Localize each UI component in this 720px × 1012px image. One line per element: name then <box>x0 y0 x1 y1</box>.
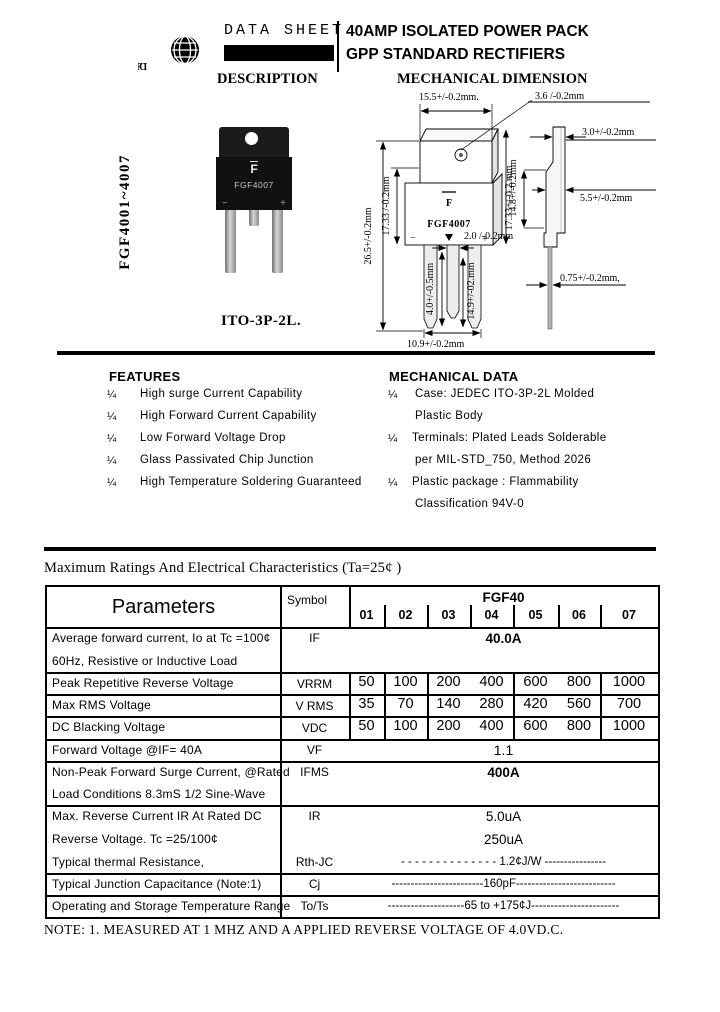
feature-bullet: ¼ <box>107 411 116 423</box>
param-vrms: Max RMS Voltage <box>52 698 151 712</box>
feature-item: High Temperature Soldering Guaranteed <box>140 476 362 488</box>
description-heading: DESCRIPTION <box>217 71 318 88</box>
vrrm-06: 800 <box>558 674 600 690</box>
footnote: NOTE: 1. MEASURED AT 1 MHZ AND A APPLIED… <box>44 922 563 938</box>
vrrm-04: 400 <box>470 674 513 690</box>
feature-bullet: ¼ <box>107 433 116 445</box>
mech-line: Plastic Body <box>415 410 483 422</box>
col-header-03: 03 <box>427 608 470 622</box>
front-part-number: FGF4007 <box>427 219 471 230</box>
symbol-vrms: V RMS <box>280 699 349 713</box>
param-ir-line1: Max. Reverse Current IR At Rated DC <box>52 809 262 823</box>
col-header-05: 05 <box>513 608 558 622</box>
svg-text:FCI: FCI <box>138 62 147 73</box>
param-ir-line3: Typical thermal Resistance, <box>52 855 204 869</box>
symbol-vdc: VDC <box>280 721 349 735</box>
dim-mid-lead-label: 4.0+/-0.5mm <box>425 263 436 316</box>
photo-brand-letter: F <box>250 161 257 176</box>
front-hole-center <box>459 153 463 157</box>
param-ir-line2: Reverse Voltage. Tc =25/100¢ <box>52 832 218 846</box>
feature-item: High surge Current Capability <box>140 388 302 400</box>
mech-line: Case: JEDEC ITO-3P-2L Molded <box>415 388 594 400</box>
photo-lead-left <box>225 210 236 273</box>
symbol-rth: Rth-JC <box>280 855 349 869</box>
param-cj: Typical Junction Capacitance (Note:1) <box>52 877 262 891</box>
side-profile <box>544 127 565 247</box>
section-divider-table <box>44 547 656 551</box>
vdc-03: 200 <box>427 718 470 734</box>
dim-top-thickness-label: 3.0+/-0.2mm <box>582 127 635 138</box>
header-black-bar <box>224 45 334 61</box>
vrms-02: 70 <box>384 696 427 712</box>
vdc-06: 800 <box>558 718 600 734</box>
param-ifms-line2: Load Conditions 8.3mS 1/2 Sine-Wave <box>52 787 265 801</box>
datasheet-page: FCI DATA SHEET 40AMP ISOLATED POWER PACK… <box>0 0 720 1012</box>
doc-title-line1: 40AMP ISOLATED POWER PACK <box>346 23 589 41</box>
front-minus-mark: − <box>410 233 416 244</box>
header-divider <box>337 21 339 72</box>
mech-bullet: ¼ <box>388 389 397 401</box>
value-vf: 1.1 <box>349 742 658 758</box>
param-if-line1: Average forward current, Io at Tc =100¢ <box>52 631 270 645</box>
photo-plus-mark: + <box>280 198 286 209</box>
ratings-table: Parameters Symbol FGF40 01 02 03 04 05 0… <box>45 585 660 919</box>
param-vrrm: Peak Repetitive Reverse Voltage <box>52 676 234 690</box>
feature-item: Glass Passivated Chip Junction <box>140 454 314 466</box>
vdc-02: 100 <box>384 718 427 734</box>
front-brand-letter: F <box>446 198 452 209</box>
mechanical-dimension-heading: MECHANICAL DIMENSION <box>397 71 588 88</box>
feature-bullet: ¼ <box>107 455 116 467</box>
feature-item: High Forward Current Capability <box>140 410 317 422</box>
data-sheet-label: DATA SHEET <box>224 22 344 39</box>
vrms-01: 35 <box>349 696 384 712</box>
mech-line: per MIL-STD_750, Method 2026 <box>415 454 591 466</box>
package-name-label: ITO-3P-2L. <box>221 313 301 330</box>
photo-lead-right <box>272 210 283 273</box>
vrrm-05: 600 <box>513 674 558 690</box>
vrrm-02: 100 <box>384 674 427 690</box>
param-vf: Forward Voltage @IF= 40A <box>52 743 202 757</box>
mech-line: Classification 94V-0 <box>415 498 524 510</box>
vdc-05: 600 <box>513 718 558 734</box>
mech-line: Terminals: Plated Leads Solderable <box>412 432 607 444</box>
vrms-06: 560 <box>558 696 600 712</box>
vdc-01: 50 <box>349 718 384 734</box>
vrrm-01: 50 <box>349 674 384 690</box>
col-header-04: 04 <box>470 608 513 622</box>
feature-bullet: ¼ <box>107 477 116 489</box>
dim-lead-width-label: 2.0 /-0.2mm <box>464 231 513 242</box>
part-range-text: FGF4001~4007 <box>117 154 134 270</box>
dim-top-width-label: 15.5+/-0.2mm. <box>419 92 479 103</box>
mech-line: Plastic package : Flammability <box>412 476 579 488</box>
front-tab-face <box>420 141 492 183</box>
feature-item: Low Forward Voltage Drop <box>140 432 286 444</box>
vrms-04: 280 <box>470 696 513 712</box>
param-vdc: DC Blacking Voltage <box>52 720 165 734</box>
symbol-ifms: IFMS <box>280 765 349 779</box>
value-ir-100: 250uA <box>349 832 658 847</box>
feature-bullet: ¼ <box>107 389 116 401</box>
dim-lead-span-label: 10.9+/-0.2mm <box>407 339 465 350</box>
dim-lead-length-label: 14.9+/-02.mm <box>466 262 477 320</box>
section-divider-top <box>57 351 655 355</box>
vrrm-07: 1000 <box>600 674 658 690</box>
front-tab-top-face <box>420 129 498 141</box>
param-tots: Operating and Storage Temperature Range <box>52 899 290 913</box>
part-range-vertical: FGF4001~4007 <box>96 148 154 276</box>
photo-lead-middle <box>249 210 259 226</box>
photo-body: F FGF4007 − + <box>216 157 292 210</box>
mechanical-data-heading: MECHANICAL DATA <box>389 369 518 384</box>
col-header-07: 07 <box>600 608 658 622</box>
vdc-04: 400 <box>470 718 513 734</box>
symbol-cj: Cj <box>280 877 349 891</box>
photo-mount-hole <box>245 132 258 145</box>
vdc-07: 1000 <box>600 718 658 734</box>
value-rth: - - - - - - - - - - - - - - 1.2¢J/W ----… <box>349 856 658 868</box>
photo-part-number: FGF4007 <box>216 180 292 190</box>
side-lead <box>548 247 552 329</box>
dim-total-height-label: 26.5+/-0.2mm <box>363 207 374 265</box>
param-if-line2: 60Hz, Resistive or Inductive Load <box>52 654 237 668</box>
package-photo: F FGF4007 − + <box>216 126 292 276</box>
symbol-vf: VF <box>280 743 349 757</box>
table-caption: Maximum Ratings And Electrical Character… <box>44 560 401 577</box>
symbol-tots: To/Ts <box>280 899 349 913</box>
dim-body-height-label: 17.33 /-0.2mm <box>381 176 392 235</box>
value-ifms: 400A <box>349 765 658 780</box>
value-ir-25: 5.0uA <box>349 809 658 824</box>
value-if: 40.0A <box>349 631 658 646</box>
vrms-03: 140 <box>427 696 470 712</box>
photo-minus-mark: − <box>222 198 228 209</box>
dim-lead-thickness-label: 0.75+/-0.2mm, <box>560 273 620 284</box>
col-header-parameters: Parameters <box>47 587 280 627</box>
value-cj: ------------------------160pF-----------… <box>349 878 658 890</box>
value-tots: --------------------65 to +175¢J--------… <box>349 900 658 912</box>
col-header-symbol: Symbol <box>287 593 327 607</box>
col-header-02: 02 <box>384 608 427 622</box>
symbol-ir: IR <box>280 809 349 823</box>
mechanical-drawing: F FGF4007 − + <box>360 88 690 354</box>
mech-bullet: ¼ <box>388 477 397 489</box>
dim-side-height-label: 17.33+/-0.2.mm <box>504 165 515 230</box>
dim-body-thickness-label: 5.5+/-0.2mm <box>580 193 633 204</box>
front-lead-middle <box>447 245 459 318</box>
col-header-01: 01 <box>349 608 384 622</box>
vrms-07: 700 <box>600 696 658 712</box>
dim-hole-dia-label: 3.6 /-0.2mm <box>535 91 584 102</box>
col-header-group: FGF40 <box>349 590 658 605</box>
col-header-06: 06 <box>558 608 600 622</box>
symbol-if: IF <box>280 631 349 645</box>
vrrm-03: 200 <box>427 674 470 690</box>
symbol-vrrm: VRRM <box>280 677 349 691</box>
doc-title-line2: GPP STANDARD RECTIFIERS <box>346 46 565 64</box>
features-heading: FEATURES <box>109 369 181 384</box>
param-ifms-line1: Non-Peak Forward Surge Current, @Rated <box>52 765 290 779</box>
mech-bullet: ¼ <box>388 433 397 445</box>
vrms-05: 420 <box>513 696 558 712</box>
fci-logo: FCI <box>138 20 222 78</box>
